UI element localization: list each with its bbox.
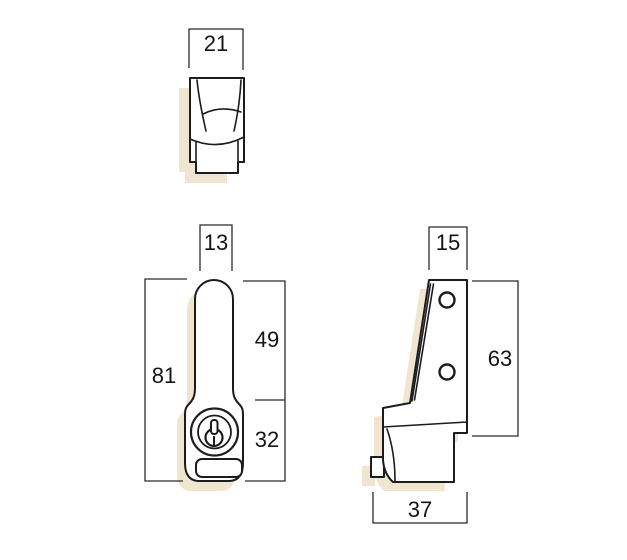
side-view-outline — [383, 280, 467, 482]
dimension-label-top-width: 21 — [204, 33, 228, 55]
dimension-label-front-handle-width: 13 — [204, 232, 228, 254]
drawing-svg — [0, 0, 627, 560]
front-base-slot — [196, 459, 242, 477]
dimension-label-side-height: 63 — [488, 348, 512, 370]
dimension-label-front-lower-height: 32 — [255, 429, 279, 451]
side-view — [362, 227, 518, 523]
dimension-label-front-upper-height: 49 — [255, 329, 279, 351]
dimension-label-front-total-height: 81 — [152, 365, 176, 387]
dimension-label-side-top-width: 15 — [436, 232, 460, 254]
screw-hole-upper — [440, 293, 455, 308]
dimension-label-side-base-width: 37 — [408, 499, 432, 521]
screw-hole-lower — [440, 365, 455, 380]
technical-drawing-canvas: 21 13 81 49 32 15 63 37 — [0, 0, 627, 560]
